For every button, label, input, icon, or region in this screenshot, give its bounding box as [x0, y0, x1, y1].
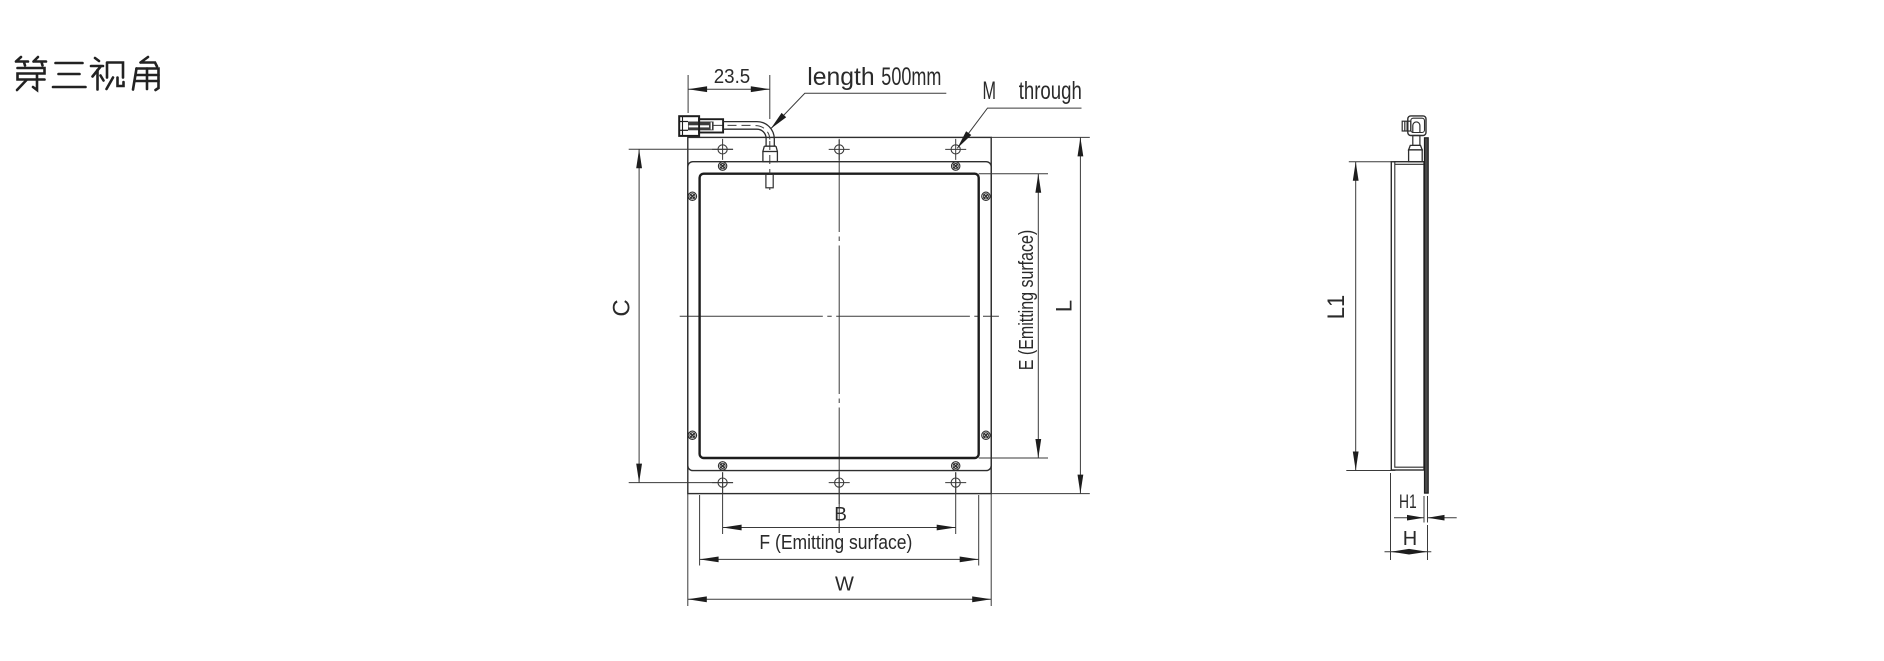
svg-text:L1: L1	[1323, 295, 1350, 319]
svg-text:E (Emitting surface): E (Emitting surface)	[1016, 230, 1038, 371]
svg-text:through: through	[1019, 77, 1082, 105]
svg-text:500mm: 500mm	[881, 63, 941, 91]
svg-text:C: C	[609, 299, 636, 316]
svg-text:F (Emitting surface): F (Emitting surface)	[759, 532, 912, 554]
svg-text:H1: H1	[1399, 492, 1417, 513]
svg-text:length: length	[807, 63, 874, 91]
svg-text:23.5: 23.5	[714, 66, 751, 88]
svg-text:M: M	[983, 77, 997, 105]
svg-text:L: L	[1052, 300, 1077, 312]
svg-text:W: W	[835, 573, 854, 595]
svg-text:B: B	[834, 504, 847, 525]
svg-text:H: H	[1403, 528, 1417, 550]
